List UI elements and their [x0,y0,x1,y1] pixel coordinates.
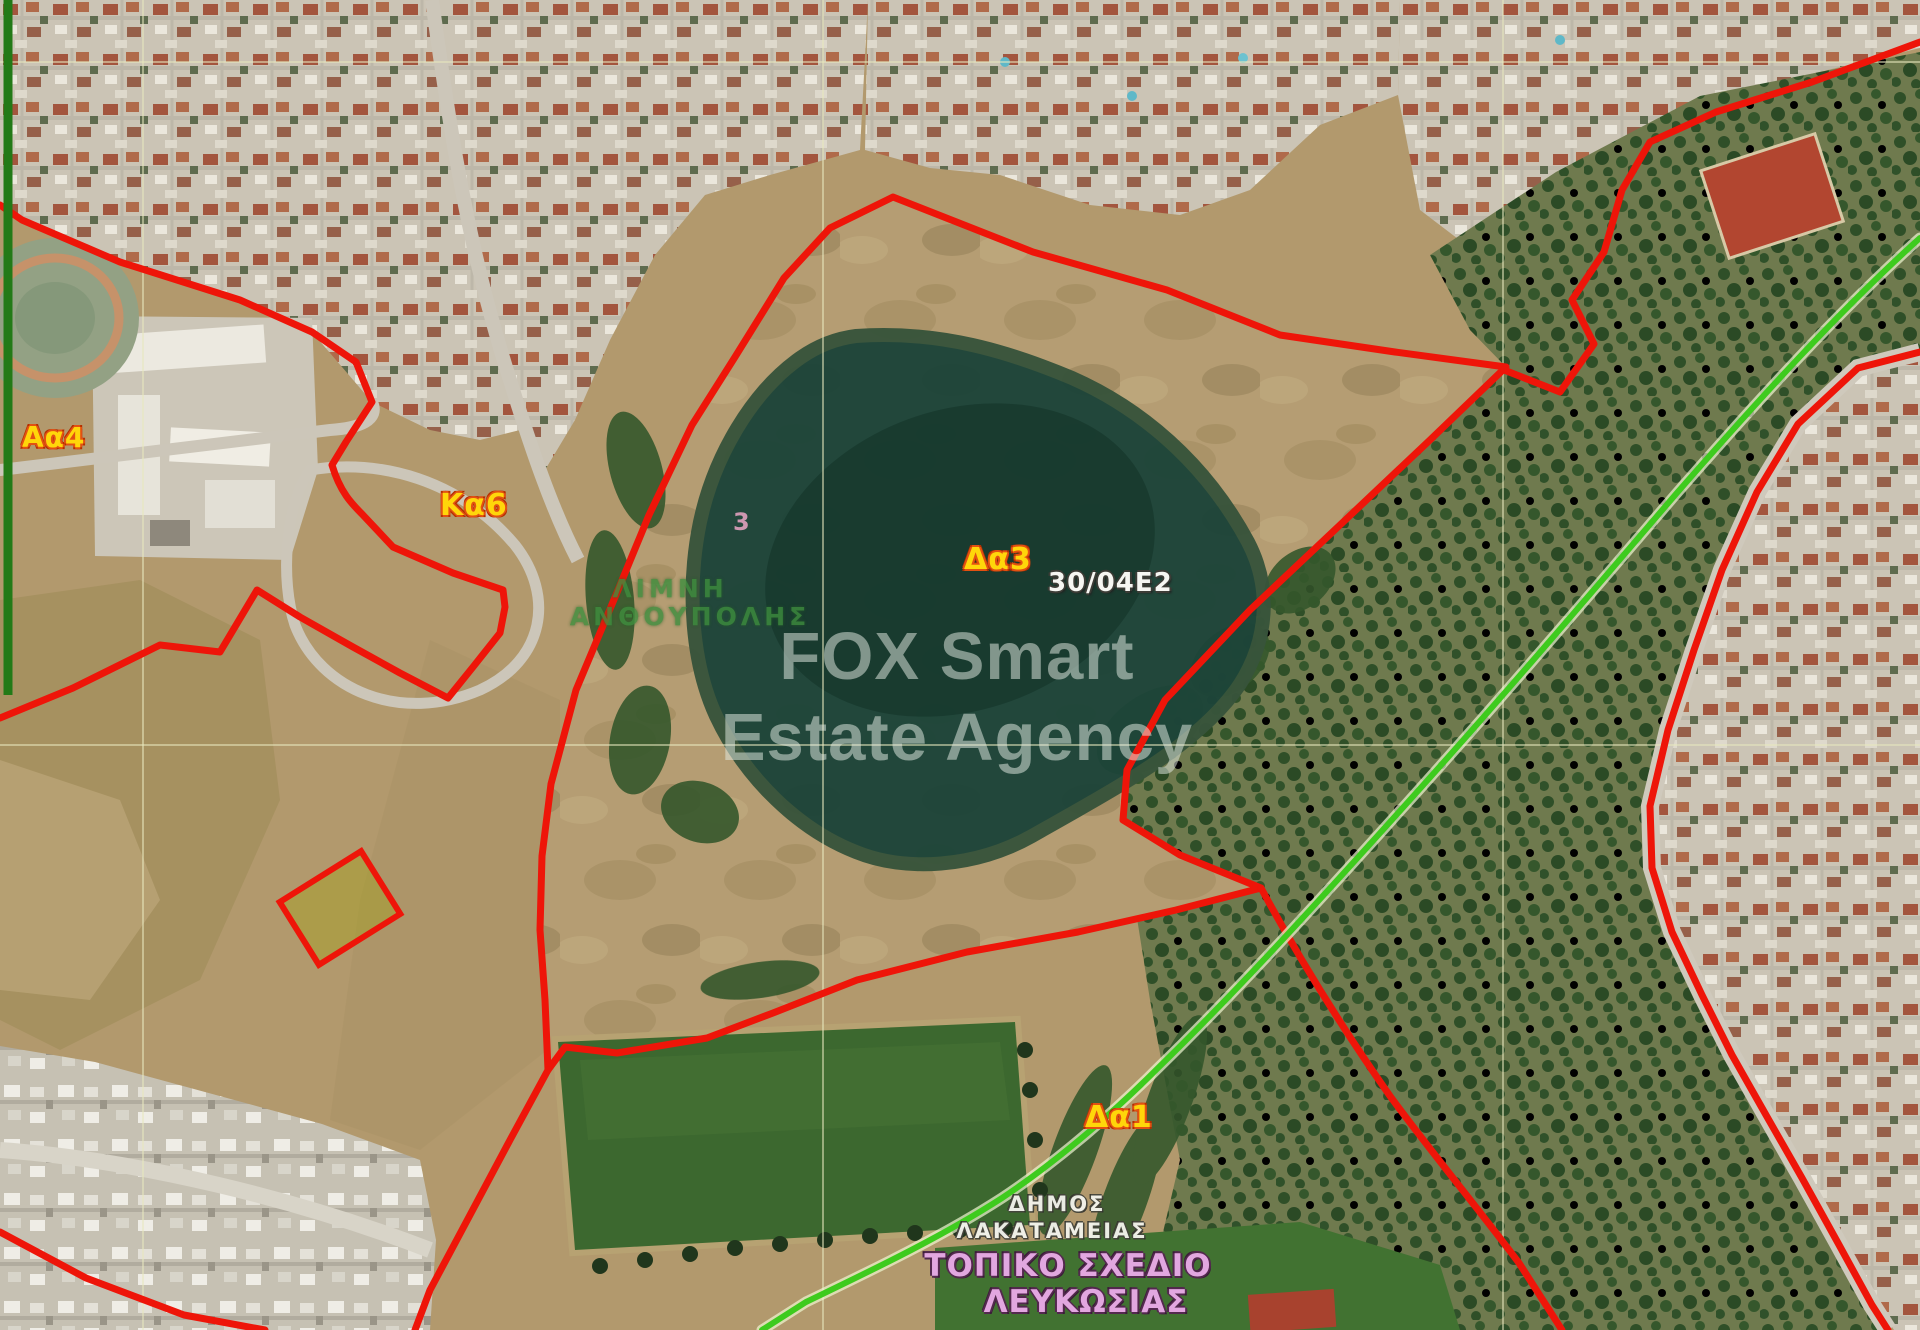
municipality-label-line2: ΛΑΚΑΤΑΜΕΙΑΣ [956,1221,1147,1242]
zone-label-aa4: Αα4 [22,424,85,452]
sheet-code-label: 30/04Ε2 [1048,570,1173,596]
local-plan-label-line2: ΛΕΥΚΩΣΙΑΣ [984,1287,1189,1318]
watermark: FOX Smart Estate Agency [721,616,1193,778]
zone-label-da3: Δα3 [964,545,1032,575]
zone-label-da1: Δα1 [1085,1103,1153,1133]
area-name-line1: ΛΙΜΝΗ [612,576,727,601]
municipality-label-line1: ΔΗΜΟΣ [1009,1194,1106,1215]
zone-label-ka6: Κα6 [440,491,508,521]
local-plan-label-line1: ΤΟΠΙΚΟ ΣΧΕΔΙΟ [924,1251,1211,1282]
area-name-line2: ΑΝΘΟΥΠΟΛΗΣ [570,604,810,629]
map-viewport: FOX Smart Estate Agency Αα4 Κα6 Δα3 30/0… [0,0,1920,1330]
red-roof-building [1248,1289,1336,1330]
grid-number-label: 3 [733,510,750,534]
watermark-line2: Estate Agency [721,697,1193,778]
sports-field-main [558,1022,1030,1250]
